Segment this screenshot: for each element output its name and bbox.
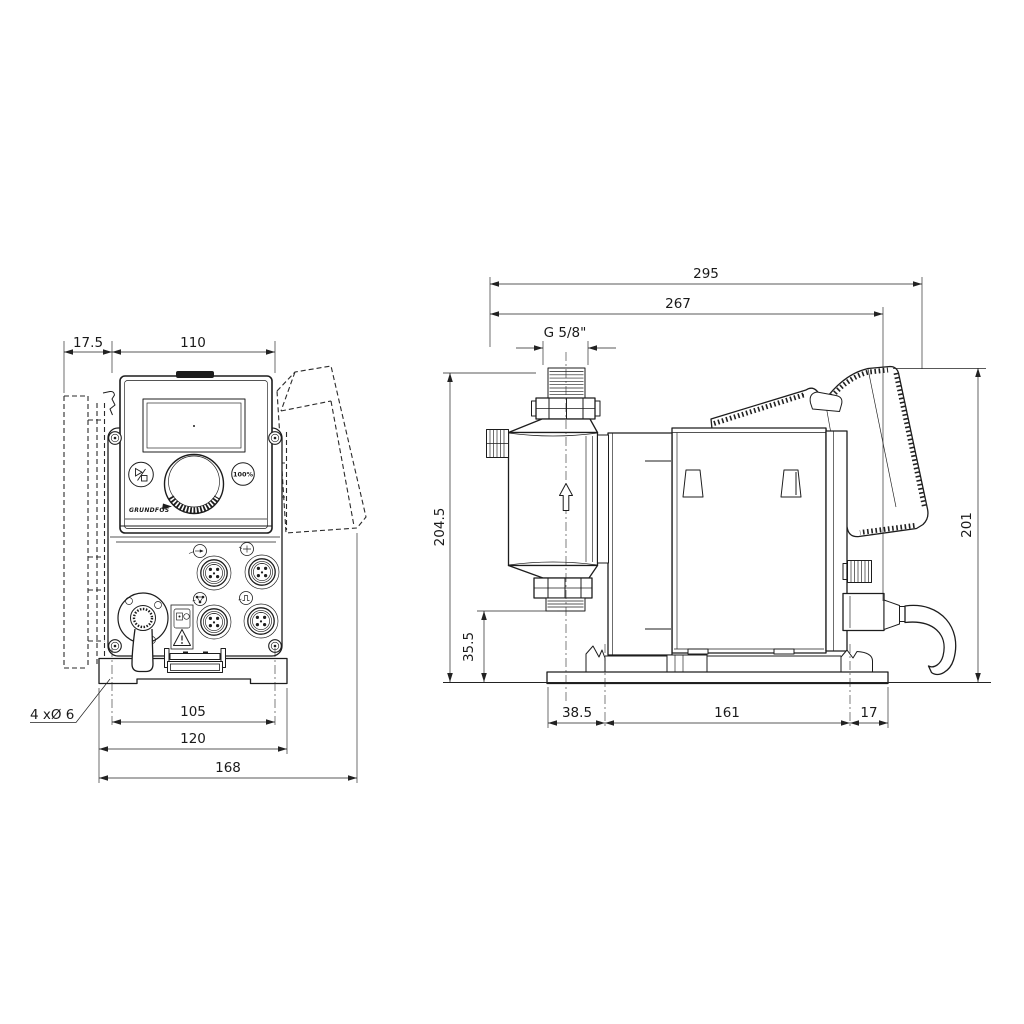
side-view [487,352,956,702]
warning-label [171,605,193,649]
front-view: 100% GRUNDFOS [64,366,366,684]
head-body [509,433,598,566]
dim-overall-depth-label: 295 [693,266,719,282]
power-cable-side [905,605,956,674]
lantern-adapter [608,433,672,655]
dim-housing-width-label: 110 [180,335,206,351]
base-plate-side [547,672,888,684]
dim-base-plate-width-label: 120 [180,731,206,747]
dim-base-plate-width: 120 [99,731,287,752]
screw-icon [109,432,122,445]
dim-bracket-offset: 17.5 [64,335,112,355]
dim-housing-width: 110 [112,335,275,355]
dim-hole-spacing: 105 [112,704,275,725]
m12-connector[interactable] [197,605,231,639]
drawing-canvas: 100% GRUNDFOS [0,0,1024,1024]
dim-bracket-offset-label: 17.5 [73,335,103,351]
dim-height-over-base-label: 201 [959,512,975,538]
dim-base-front-offset: 38.5 [548,705,605,726]
control-cube-phantom [277,366,366,533]
motor-housing-side [672,428,847,654]
discharge-thread [548,368,585,398]
click-wheel-knob[interactable] [165,455,224,514]
dim-overall-depth: 295 [490,266,922,287]
dim-base-hole-spacing-label: 161 [714,705,740,721]
dim-hole-spacing-label: 105 [180,704,206,720]
union-nut-bottom [534,578,592,598]
hole-note-label: 4 xØ 6 [30,707,74,723]
bleed-valve[interactable] [487,430,509,458]
dim-valve-height: 35.5 [461,611,487,682]
technical-drawing: 100% GRUNDFOS [0,0,1024,1024]
dim-overall-width: 168 [99,760,357,781]
dim-overall-width-label: 168 [215,760,241,776]
dim-depth-to-connector: 267 [490,296,883,317]
dim-base-rear-offset: 17 [850,705,888,726]
dim-base-front-offset-label: 38.5 [562,705,592,721]
cable-connector [843,594,884,631]
m12-connector[interactable] [197,556,231,590]
dim-overall-height-label: 204.5 [432,508,448,547]
full-capacity-label: 100% [233,471,254,479]
control-panel: 100% GRUNDFOS [120,371,272,533]
dosing-head [487,368,609,611]
hole-note: 4 xØ 6 [30,679,110,723]
m12-connector[interactable] [244,604,278,638]
dim-base-hole-spacing: 161 [605,705,850,726]
screw-icon [109,640,122,653]
suction-thread [546,598,585,611]
dim-connection-thread-label: G 5/8" [544,325,587,341]
dim-overall-height: 204.5 [432,373,453,682]
dim-depth-to-connector-label: 267 [665,296,691,312]
screw-icon [269,432,282,445]
panel-top-tab [176,371,214,378]
m12-connector[interactable] [245,555,279,589]
dim-base-rear-offset-label: 17 [860,705,877,721]
dim-valve-height-label: 35.5 [461,632,477,662]
dim-height-over-base: 201 [959,368,981,682]
power-cable [132,629,153,672]
